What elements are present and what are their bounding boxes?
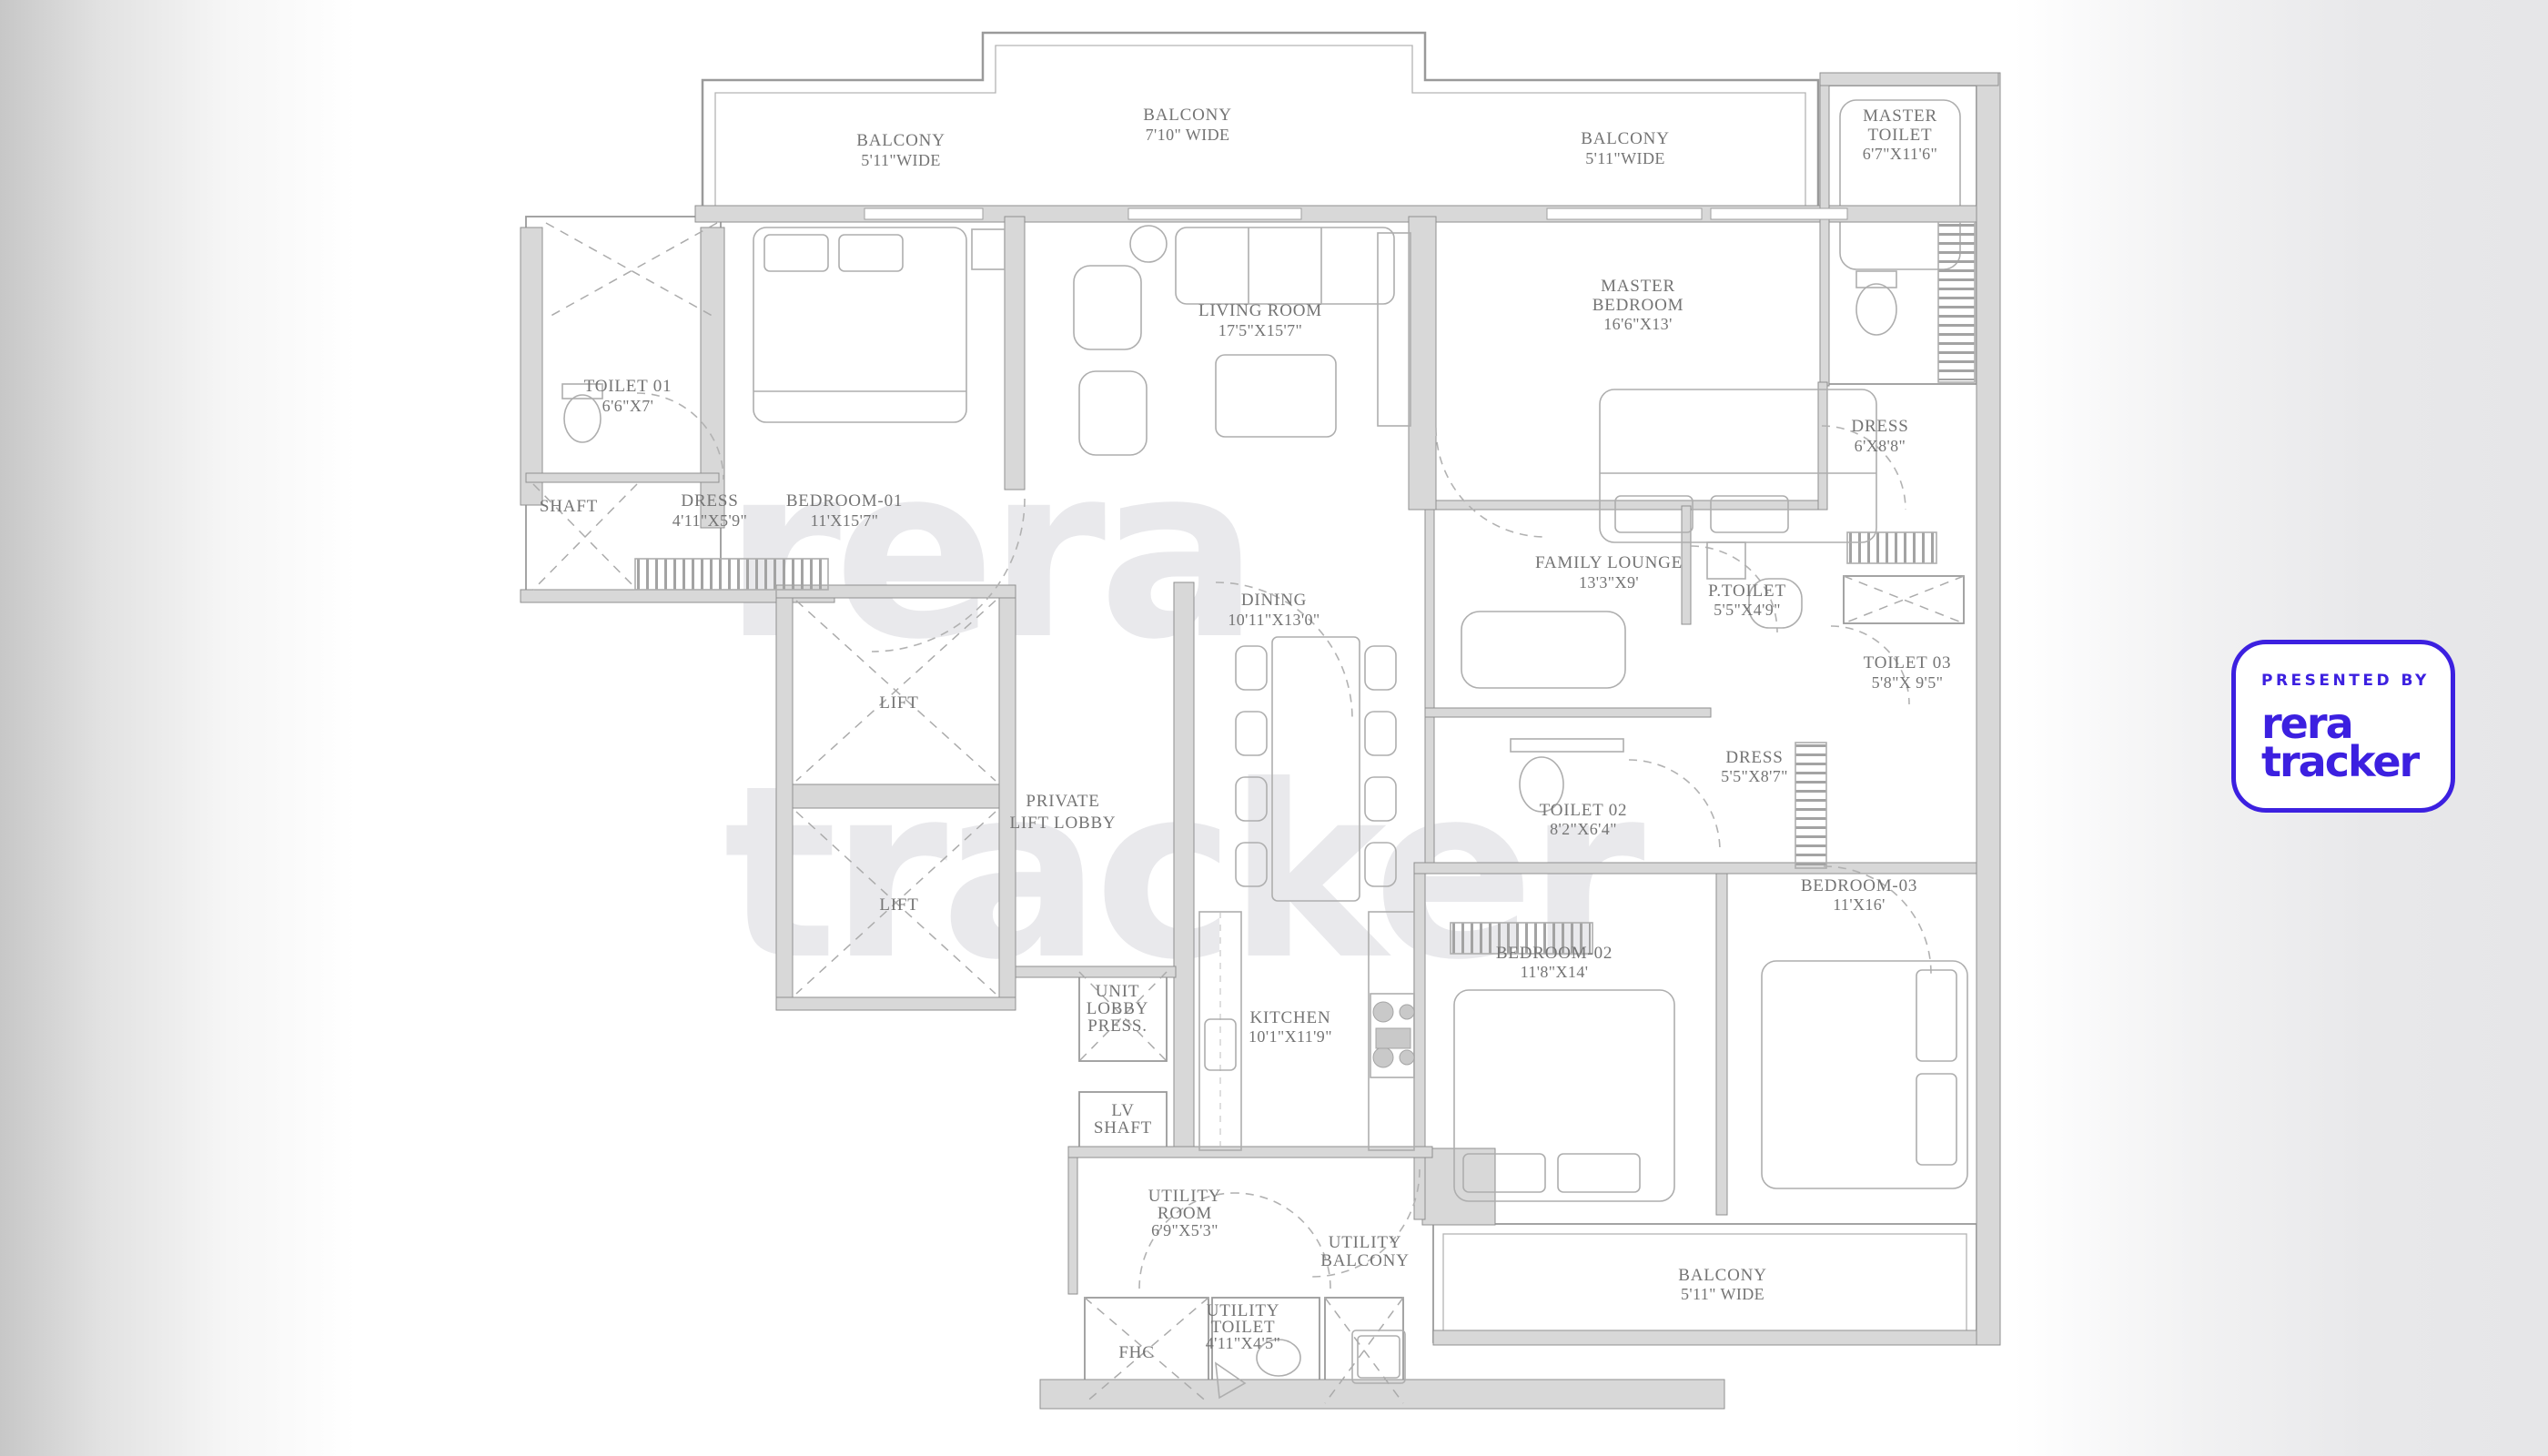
label-kitchen-dim: 10'1"X11'9" (1249, 1027, 1332, 1046)
label-utility-room-2: ROOM (1158, 1204, 1212, 1223)
label-p-toilet-dim: 5'5"X4'9" (1714, 601, 1781, 619)
label-utility-balcony: UTILITY (1329, 1233, 1402, 1252)
label-balcony-top-left: BALCONY (856, 131, 945, 150)
label-balcony-top-center-dim: 7'10" WIDE (1146, 126, 1230, 144)
label-toilet-01: TOILET 01 (584, 377, 672, 396)
label-toilet-02: TOILET 02 (1540, 801, 1628, 820)
label-unit-lobby-press: UNIT (1096, 982, 1140, 1001)
label-dining: DINING (1241, 591, 1307, 610)
label-dress-03: DRESS (1725, 748, 1783, 767)
label-toilet-03: TOILET 03 (1864, 653, 1952, 672)
label-dress-master: DRESS (1851, 417, 1908, 436)
label-dining-dim: 10'11"X13'0" (1228, 611, 1319, 629)
label-master-toilet-2: TOILET (1868, 126, 1933, 145)
label-bedroom-03: BEDROOM-03 (1801, 876, 1917, 895)
label-living-room-dim: 17'5"X15'7" (1218, 321, 1303, 339)
label-master-bedroom-dim: 16'6"X13' (1603, 315, 1672, 333)
brand-logo-tracker: tracker (2261, 743, 2451, 781)
label-dress-01: DRESS (681, 491, 738, 511)
label-lv-shaft: LV (1111, 1101, 1134, 1120)
label-kitchen: KITCHEN (1250, 1008, 1331, 1027)
label-bedroom-03-dim: 11'X16' (1833, 895, 1886, 914)
label-utility-room: UTILITY (1148, 1187, 1222, 1206)
label-master-bedroom: MASTER (1601, 277, 1675, 296)
label-dress-03-dim: 5'5"X8'7" (1721, 767, 1788, 785)
label-family-lounge: FAMILY LOUNGE (1535, 553, 1683, 572)
presented-by-badge: PRESENTED BY rera tracker (2231, 640, 2455, 813)
label-toilet-03-dim: 5'8"X 9'5" (1872, 673, 1944, 692)
label-bedroom-02: BEDROOM-02 (1496, 944, 1613, 963)
label-bedroom-02-dim: 11'8"X14' (1521, 963, 1589, 981)
label-balcony-top-center: BALCONY (1143, 106, 1231, 125)
label-dress-01-dim: 4'11"X5'9" (672, 511, 748, 530)
label-bedroom-01-dim: 11'X15'7" (811, 511, 879, 530)
label-utility-toilet-dim: 4'11"X4'5" (1206, 1334, 1281, 1352)
label-living-room: LIVING ROOM (1198, 301, 1322, 320)
label-lv-shaft-2: SHAFT (1094, 1118, 1152, 1137)
label-bedroom-01: BEDROOM-01 (786, 491, 903, 511)
label-master-toilet-dim: 6'7"X11'6" (1863, 145, 1938, 163)
balcony-outline-top (703, 33, 1818, 217)
floorplan-drawing: rera tracker (0, 0, 2548, 1456)
label-balcony-bottom: BALCONY (1678, 1266, 1766, 1285)
label-family-lounge-dim: 13'3"X9' (1579, 573, 1639, 591)
label-private-lift-lobby-2: LIFT LOBBY (1010, 814, 1117, 833)
label-master-bedroom-2: BEDROOM (1592, 296, 1684, 315)
label-unit-lobby-press-2: LOBBY (1087, 999, 1148, 1018)
label-balcony-top-left-dim: 5'11"WIDE (861, 151, 941, 169)
label-p-toilet: P.TOILET (1708, 581, 1786, 601)
label-toilet-02-dim: 8'2"X6'4" (1550, 820, 1617, 838)
watermark-line1: rera (723, 414, 1252, 692)
label-utility-balcony-2: BALCONY (1320, 1251, 1409, 1270)
label-toilet-01-dim: 6'6"X7' (602, 397, 654, 415)
label-private-lift-lobby: PRIVATE (1026, 792, 1099, 811)
label-balcony-top-right-dim: 5'11"WIDE (1585, 149, 1665, 167)
label-fhc: FHC (1118, 1343, 1154, 1362)
label-lift-2: LIFT (879, 895, 918, 915)
floorplan-page: rera tracker (0, 0, 2548, 1456)
label-unit-lobby-press-3: PRESS. (1087, 1016, 1148, 1036)
label-master-toilet: MASTER (1863, 106, 1937, 126)
presented-by-text: PRESENTED BY (2261, 672, 2451, 690)
label-dress-master-dim: 6'X8'8" (1855, 437, 1906, 455)
label-balcony-bottom-dim: 5'11" WIDE (1681, 1285, 1764, 1303)
label-balcony-top-right: BALCONY (1581, 129, 1669, 148)
label-shaft: SHAFT (540, 497, 598, 516)
label-utility-room-dim: 6'9"X5'3" (1151, 1221, 1218, 1239)
balcony-outline-bottom (1422, 1148, 1977, 1345)
label-lift-1: LIFT (879, 693, 918, 713)
